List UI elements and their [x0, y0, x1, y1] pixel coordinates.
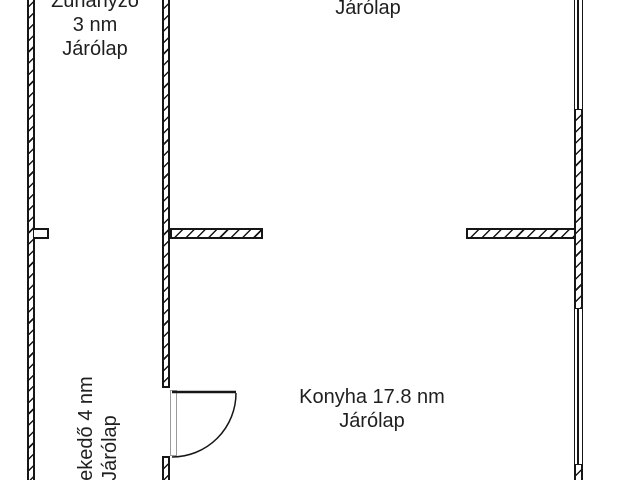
window-upper	[574, 0, 583, 110]
door-swing-arc	[172, 393, 236, 457]
room-label-shower-name: Zuhanyzó	[35, 0, 155, 13]
wall-left	[27, 0, 35, 480]
door-frame	[170, 390, 177, 456]
room-label-top-room: Járólap	[318, 0, 418, 20]
room-label-top-room-floor: Járólap	[318, 0, 418, 20]
room-label-hallway-name: Közlekedő 4 nm	[74, 363, 98, 480]
wall-stub-left	[34, 228, 49, 239]
room-label-shower-floor: Járólap	[35, 37, 155, 61]
floorplan-canvas: Zuhanyzó 3 nm Járólap Járólap Konyha 17.…	[0, 0, 640, 480]
window-lower	[574, 308, 583, 465]
room-label-shower-area: 3 nm	[35, 13, 155, 37]
wall-middle-lower	[162, 456, 170, 480]
room-label-hallway-floor: Járólap	[98, 363, 122, 480]
wall-divider-kitchen	[466, 228, 574, 239]
room-label-hallway: Közlekedő 4 nm Járólap	[74, 363, 124, 480]
window-glazing-line	[577, 309, 579, 464]
wall-middle-upper	[162, 0, 170, 388]
room-label-kitchen: Konyha 17.8 nm Járólap	[292, 385, 452, 433]
room-label-shower: Zuhanyzó 3 nm Járólap	[35, 0, 155, 61]
wall-divider-hall	[170, 228, 263, 239]
wall-right-middle	[574, 110, 583, 308]
window-glazing-line	[577, 0, 579, 109]
wall-right-lower	[574, 465, 583, 480]
room-label-kitchen-name: Konyha 17.8 nm	[292, 385, 452, 409]
room-label-kitchen-floor: Járólap	[292, 409, 452, 433]
